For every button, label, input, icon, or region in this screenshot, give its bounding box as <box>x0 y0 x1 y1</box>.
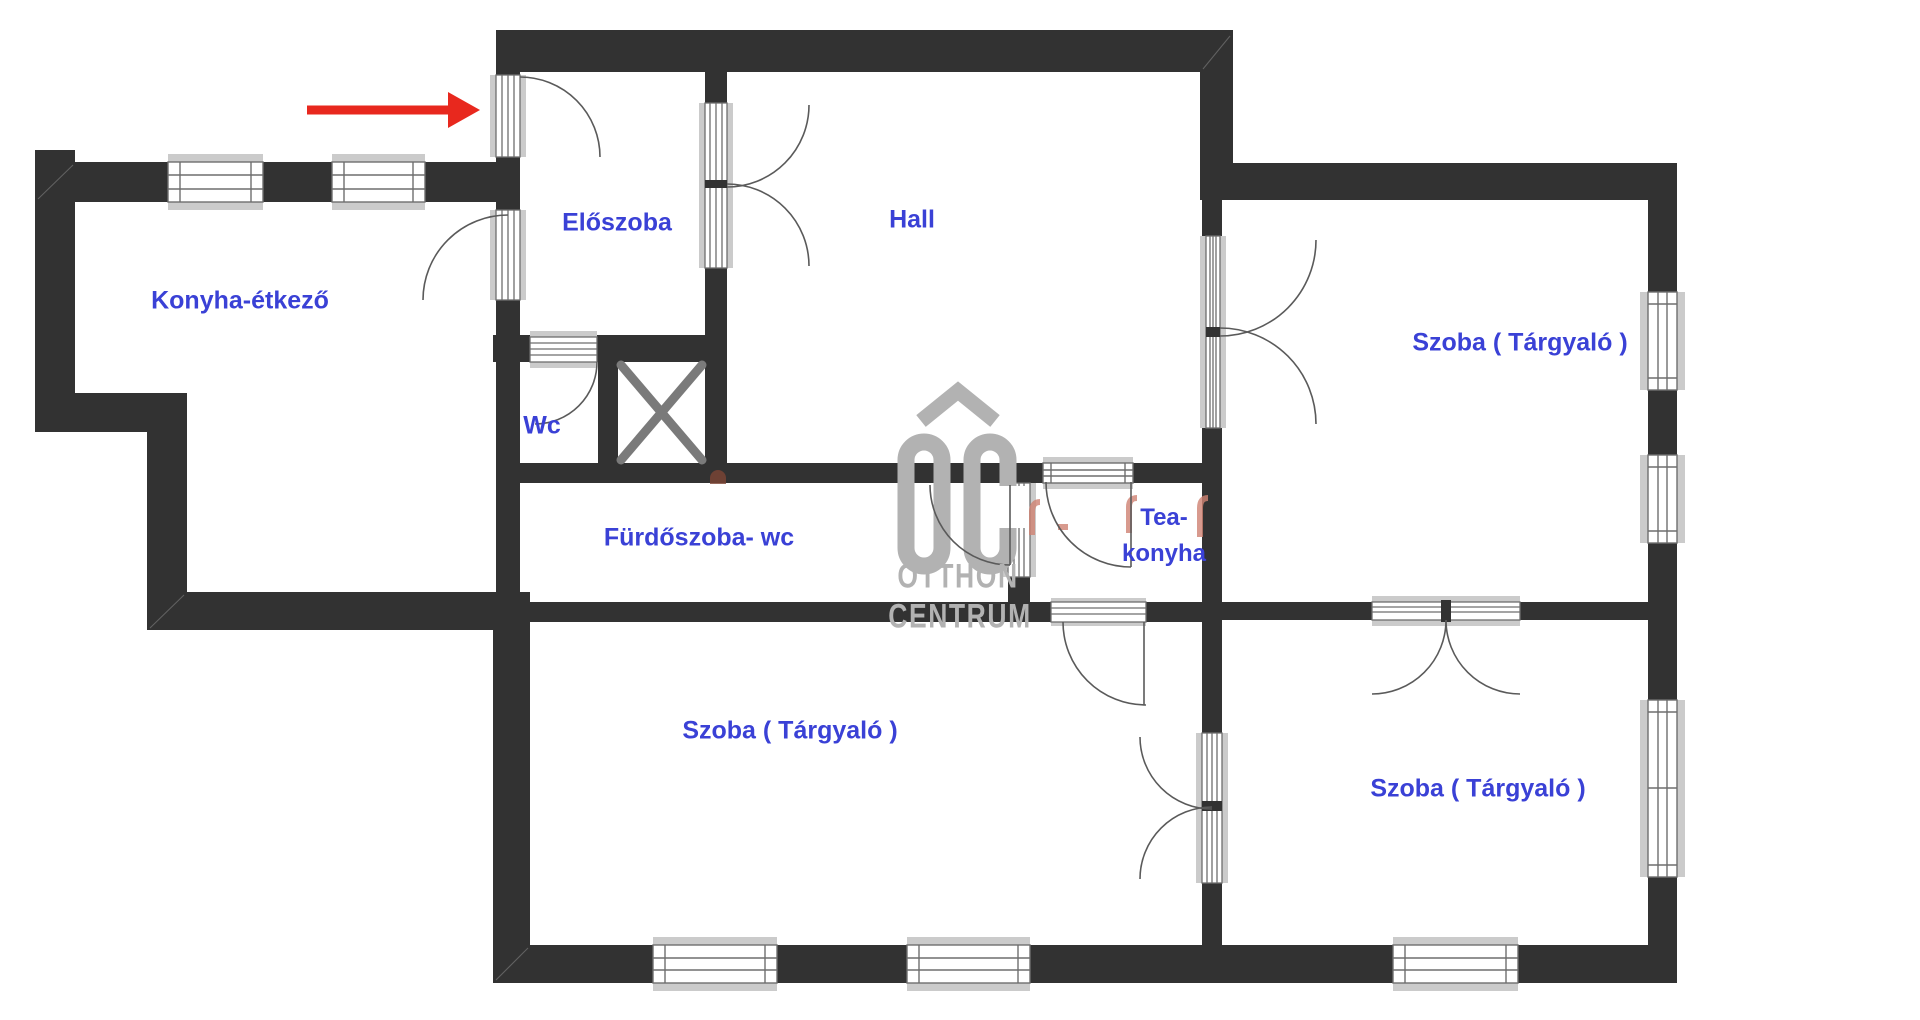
room-label-szoba-targyalo-also-jobb: Szoba ( Tárgyaló ) <box>1370 775 1585 804</box>
window-icon <box>1043 457 1133 489</box>
rooms <box>75 72 1648 945</box>
floor-plan-canvas: Konyha-étkező Előszoba Hall Wc Fürdőszob… <box>0 0 1920 1020</box>
room-label-tea-konyha: Tea- konyha <box>1122 500 1206 572</box>
room-label-tea-konyha-line1: Tea- <box>1122 500 1206 536</box>
watermark-line2: CENTRUM <box>888 598 1032 637</box>
room-label-szoba-targyalo-felso: Szoba ( Tárgyaló ) <box>1412 329 1627 358</box>
window-icon <box>1393 937 1518 991</box>
room-label-tea-konyha-line2: konyha <box>1122 536 1206 572</box>
room-label-szoba-targyalo-also-bal: Szoba ( Tárgyaló ) <box>682 717 897 746</box>
room-szoba-targyalo-felso <box>1222 200 1648 602</box>
window-icon <box>1640 292 1685 390</box>
floor-plan-drawing <box>0 0 1920 1020</box>
room-eloszoba <box>520 72 705 335</box>
window-icon <box>1640 700 1685 877</box>
entrance-door-icon <box>490 75 526 157</box>
door-icon <box>530 331 597 368</box>
room-label-eloszoba: Előszoba <box>562 209 672 238</box>
door-icon <box>490 210 526 300</box>
window-icon <box>907 937 1030 991</box>
window-icon <box>653 937 777 991</box>
shaft-box <box>618 362 705 463</box>
window-icon <box>1640 455 1685 543</box>
room-label-konyha-etkezo: Konyha-étkező <box>151 287 329 316</box>
double-door-icon <box>1200 236 1226 428</box>
room-label-hall: Hall <box>889 206 935 235</box>
door-icon <box>1051 598 1146 626</box>
room-label-furdoszoba-wc: Fürdőszoba- wc <box>604 524 794 553</box>
watermark-line1: OTTHON <box>897 558 1018 597</box>
window-icon <box>168 154 263 210</box>
double-door-icon <box>699 103 733 268</box>
window-icon <box>332 154 425 210</box>
entrance-arrow-icon <box>307 92 480 128</box>
room-label-wc: Wc <box>523 412 561 441</box>
room-szoba-targyalo-also-bal <box>530 622 1202 945</box>
watermark-letter-c-gap <box>985 486 1027 528</box>
